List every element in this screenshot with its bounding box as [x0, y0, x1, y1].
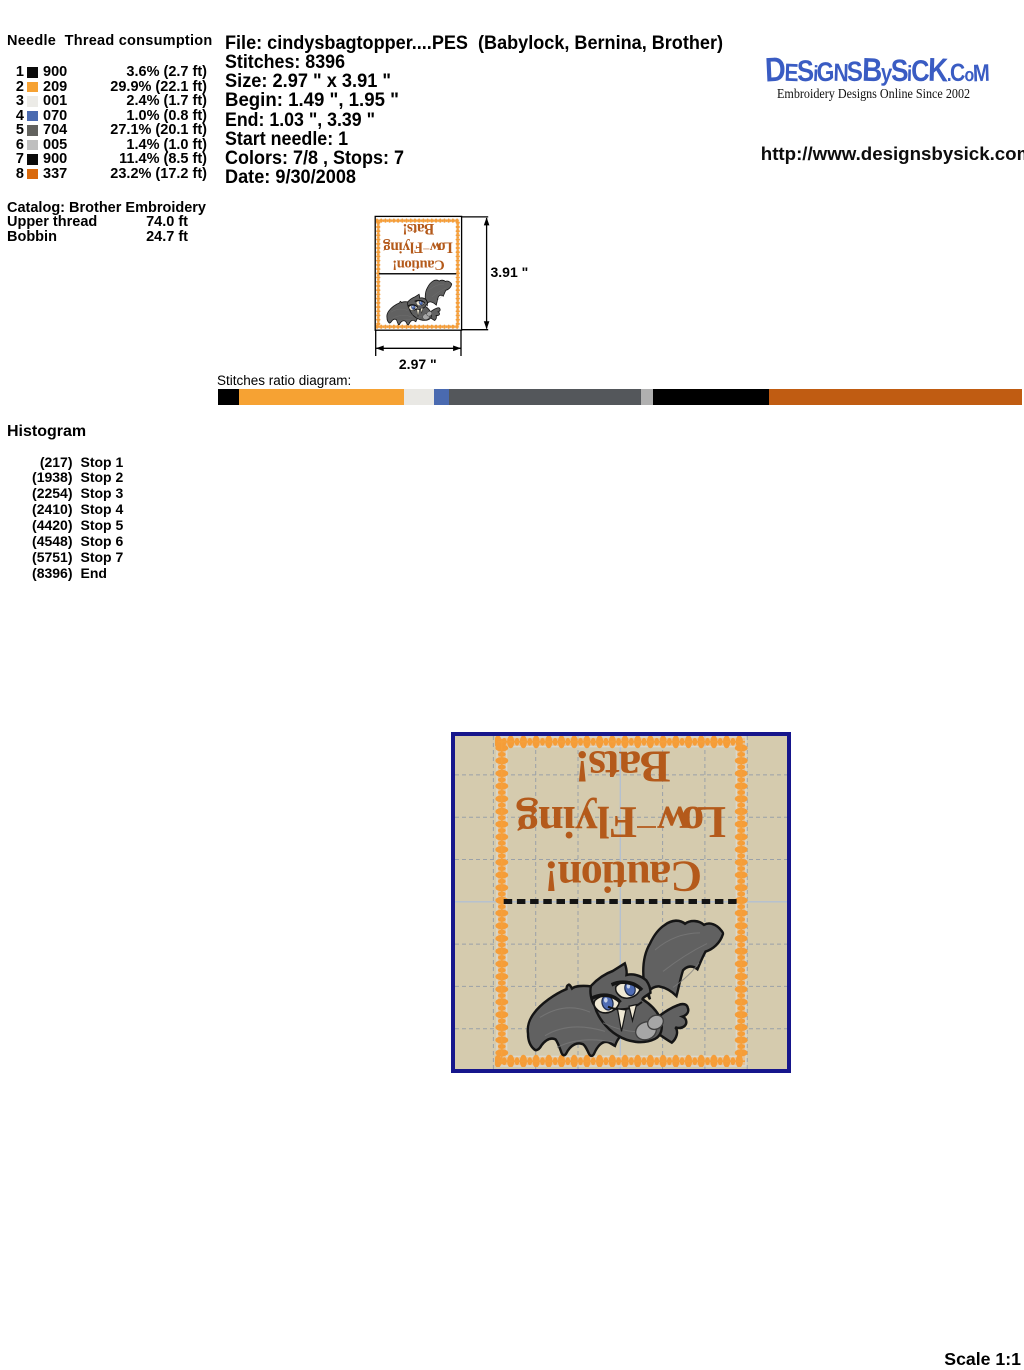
- svg-text:Bats!: Bats!: [403, 219, 435, 236]
- svg-text:Flying: Flying: [383, 238, 424, 255]
- svg-text:Caution!: Caution!: [544, 852, 702, 901]
- svg-text:Low: Low: [657, 797, 726, 848]
- svg-text:Bats!: Bats!: [574, 742, 670, 793]
- svg-text:Caution!: Caution!: [393, 256, 445, 272]
- svg-text:Low: Low: [430, 238, 453, 255]
- svg-text:Flying: Flying: [516, 797, 637, 848]
